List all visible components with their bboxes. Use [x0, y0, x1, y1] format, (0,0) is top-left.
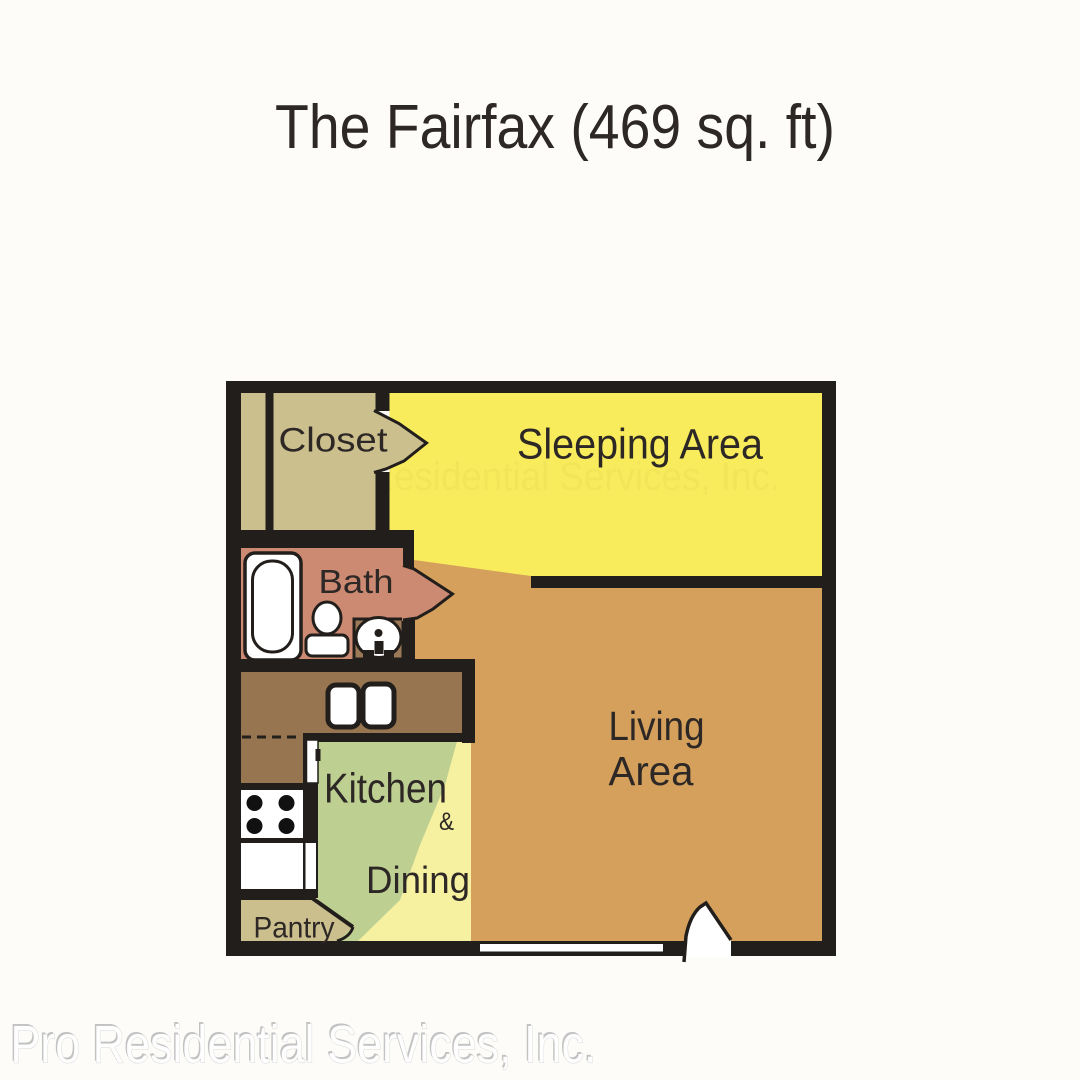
- svg-text:Area: Area: [609, 748, 694, 794]
- svg-text:Kitchen: Kitchen: [324, 765, 447, 812]
- svg-text:Pro Residential Services, Inc.: Pro Residential Services, Inc.: [11, 1016, 597, 1075]
- svg-text:Living: Living: [609, 703, 705, 749]
- svg-text:Dining: Dining: [366, 860, 470, 902]
- svg-text:The Fairfax (469 sq. ft): The Fairfax (469 sq. ft): [275, 93, 835, 162]
- svg-text:Closet: Closet: [279, 422, 389, 460]
- svg-text:&: &: [439, 808, 454, 836]
- svg-text:Pantry: Pantry: [254, 912, 335, 945]
- svg-text:Bath: Bath: [319, 563, 394, 600]
